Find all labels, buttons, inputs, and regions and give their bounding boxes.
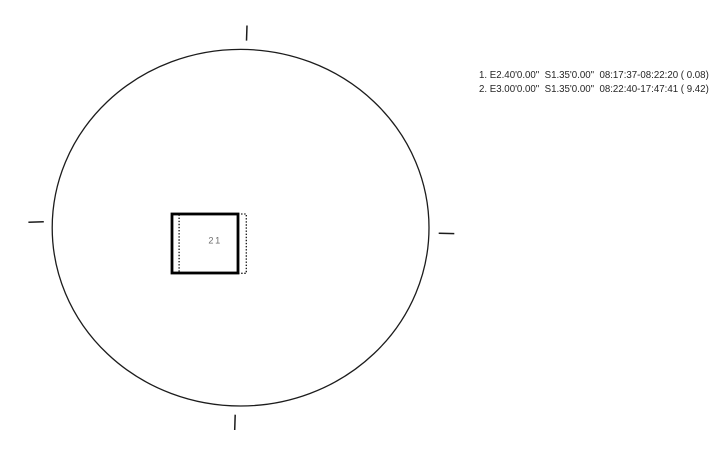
svg-text:21: 21 <box>208 236 221 246</box>
